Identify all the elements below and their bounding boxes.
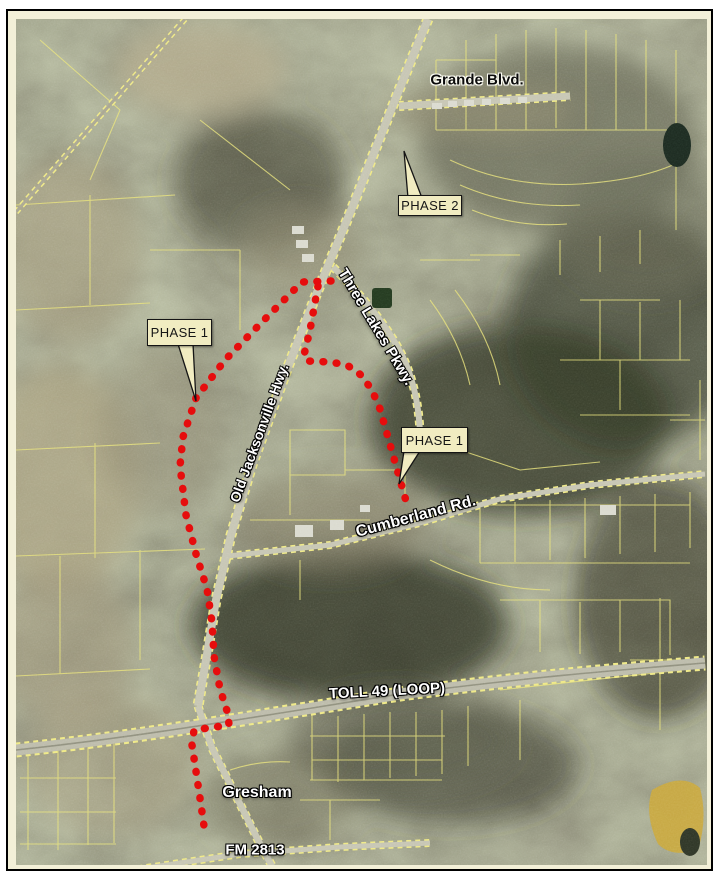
map-page: Grande Blvd.Three Lakes Pkwy.Old Jackson… [0,0,725,883]
satellite-layer [16,19,707,865]
aerial-map: Grande Blvd.Three Lakes Pkwy.Old Jackson… [16,19,707,865]
map-frame: Grande Blvd.Three Lakes Pkwy.Old Jackson… [6,9,713,871]
callout-phase-2: PHASE 2 [398,195,462,216]
callout-phase-1-west: PHASE 1 [147,319,212,346]
callout-phase-1-east: PHASE 1 [401,427,468,453]
grain-texture [16,19,707,865]
